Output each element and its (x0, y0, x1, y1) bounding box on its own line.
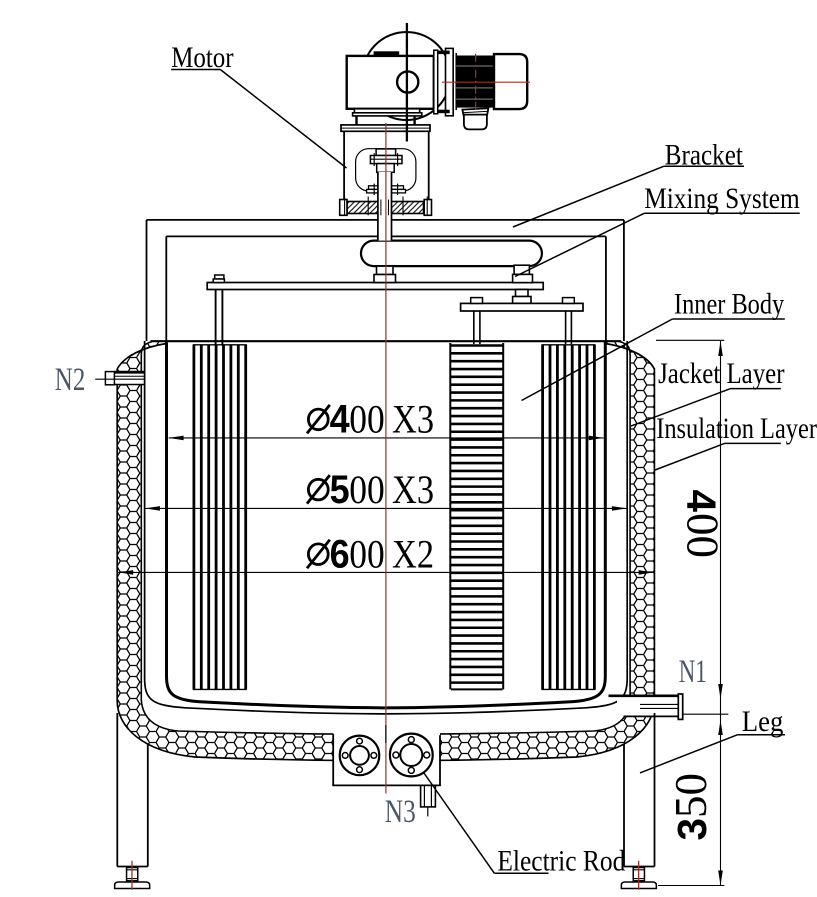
svg-text:Leg: Leg (742, 705, 784, 738)
svg-text:X3: X3 (392, 397, 434, 442)
svg-text:00: 00 (349, 531, 385, 576)
svg-text:X3: X3 (392, 467, 434, 512)
svg-text:5: 5 (330, 468, 350, 512)
svg-text:N3: N3 (385, 794, 416, 830)
svg-text:N2: N2 (55, 362, 86, 398)
svg-text:00: 00 (349, 467, 385, 512)
svg-text:00: 00 (349, 397, 385, 442)
svg-text:4: 4 (330, 398, 350, 442)
svg-text:00: 00 (678, 513, 728, 558)
svg-text:Mixing System: Mixing System (644, 182, 800, 215)
svg-text:Jacket Layer: Jacket Layer (658, 357, 784, 390)
svg-text:X2: X2 (392, 531, 434, 576)
svg-text:4: 4 (679, 490, 725, 513)
svg-text:6: 6 (330, 532, 350, 576)
svg-text:3: 3 (669, 818, 715, 841)
svg-text:50: 50 (666, 773, 716, 818)
svg-text:Insulation Layer: Insulation Layer (656, 412, 817, 445)
svg-text:N1: N1 (679, 654, 707, 690)
svg-text:Inner Body: Inner Body (674, 288, 784, 321)
